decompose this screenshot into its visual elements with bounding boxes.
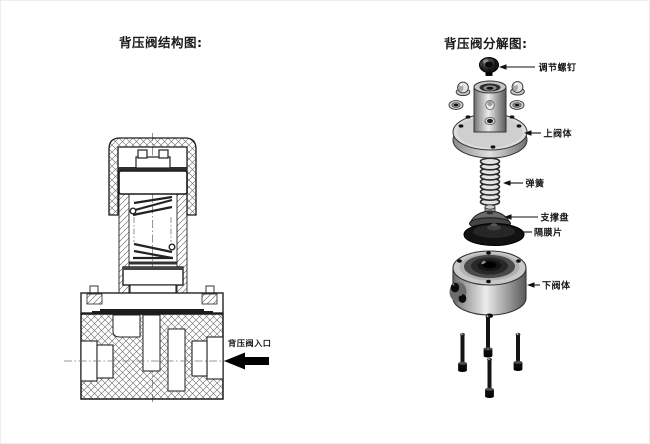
bolt-left xyxy=(458,333,467,372)
label-lower-valve-body: 下阀体 xyxy=(542,280,571,292)
adjust-screw-section xyxy=(136,150,170,168)
inlet-arrow xyxy=(224,353,269,370)
label-support-disc: 支撑盘 xyxy=(540,212,570,224)
label-upper-valve-body: 上阀体 xyxy=(544,128,573,140)
inlet-label: 背压阀入口 xyxy=(228,338,271,348)
bolt-front xyxy=(485,358,494,398)
acorn-nut-right xyxy=(511,82,525,96)
acorn-nut-left xyxy=(456,82,470,96)
arrow-adjust-screw xyxy=(499,64,507,70)
washer-left xyxy=(449,101,463,110)
diaphragm-part xyxy=(464,223,524,245)
exploded-diagram: 调节螺钉 上阀体 弹簧 支撑盘 隔膜片 下阀体 xyxy=(441,51,650,411)
piston-section xyxy=(123,267,183,293)
label-adjust-screw: 调节螺钉 xyxy=(539,62,577,74)
arrow-lower-valve-body xyxy=(527,282,535,288)
part-labels: 调节螺钉 上阀体 弹簧 支撑盘 隔膜片 下阀体 xyxy=(526,62,577,292)
arrow-spring xyxy=(503,180,511,186)
spring-seat xyxy=(119,171,187,194)
spring-section xyxy=(129,197,177,265)
structure-title: 背压阀结构图: xyxy=(119,32,203,51)
bolt-right xyxy=(514,333,523,371)
spring-part xyxy=(481,158,500,205)
washer-right xyxy=(510,101,524,110)
label-diaphragm: 隔膜片 xyxy=(534,227,563,239)
exploded-title: 背压阀分解图: xyxy=(444,33,528,52)
label-spring: 弹簧 xyxy=(526,178,545,190)
inlet-annotation: 背压阀入口 xyxy=(224,338,271,370)
figure-canvas: 背压阀结构图: 背压阀分解图: xyxy=(0,0,650,444)
adjust-screw-part xyxy=(480,58,499,77)
structure-diagram: 背压阀入口 xyxy=(56,131,286,421)
lower-valve-body-part xyxy=(450,251,527,318)
bolt-back xyxy=(484,315,493,357)
